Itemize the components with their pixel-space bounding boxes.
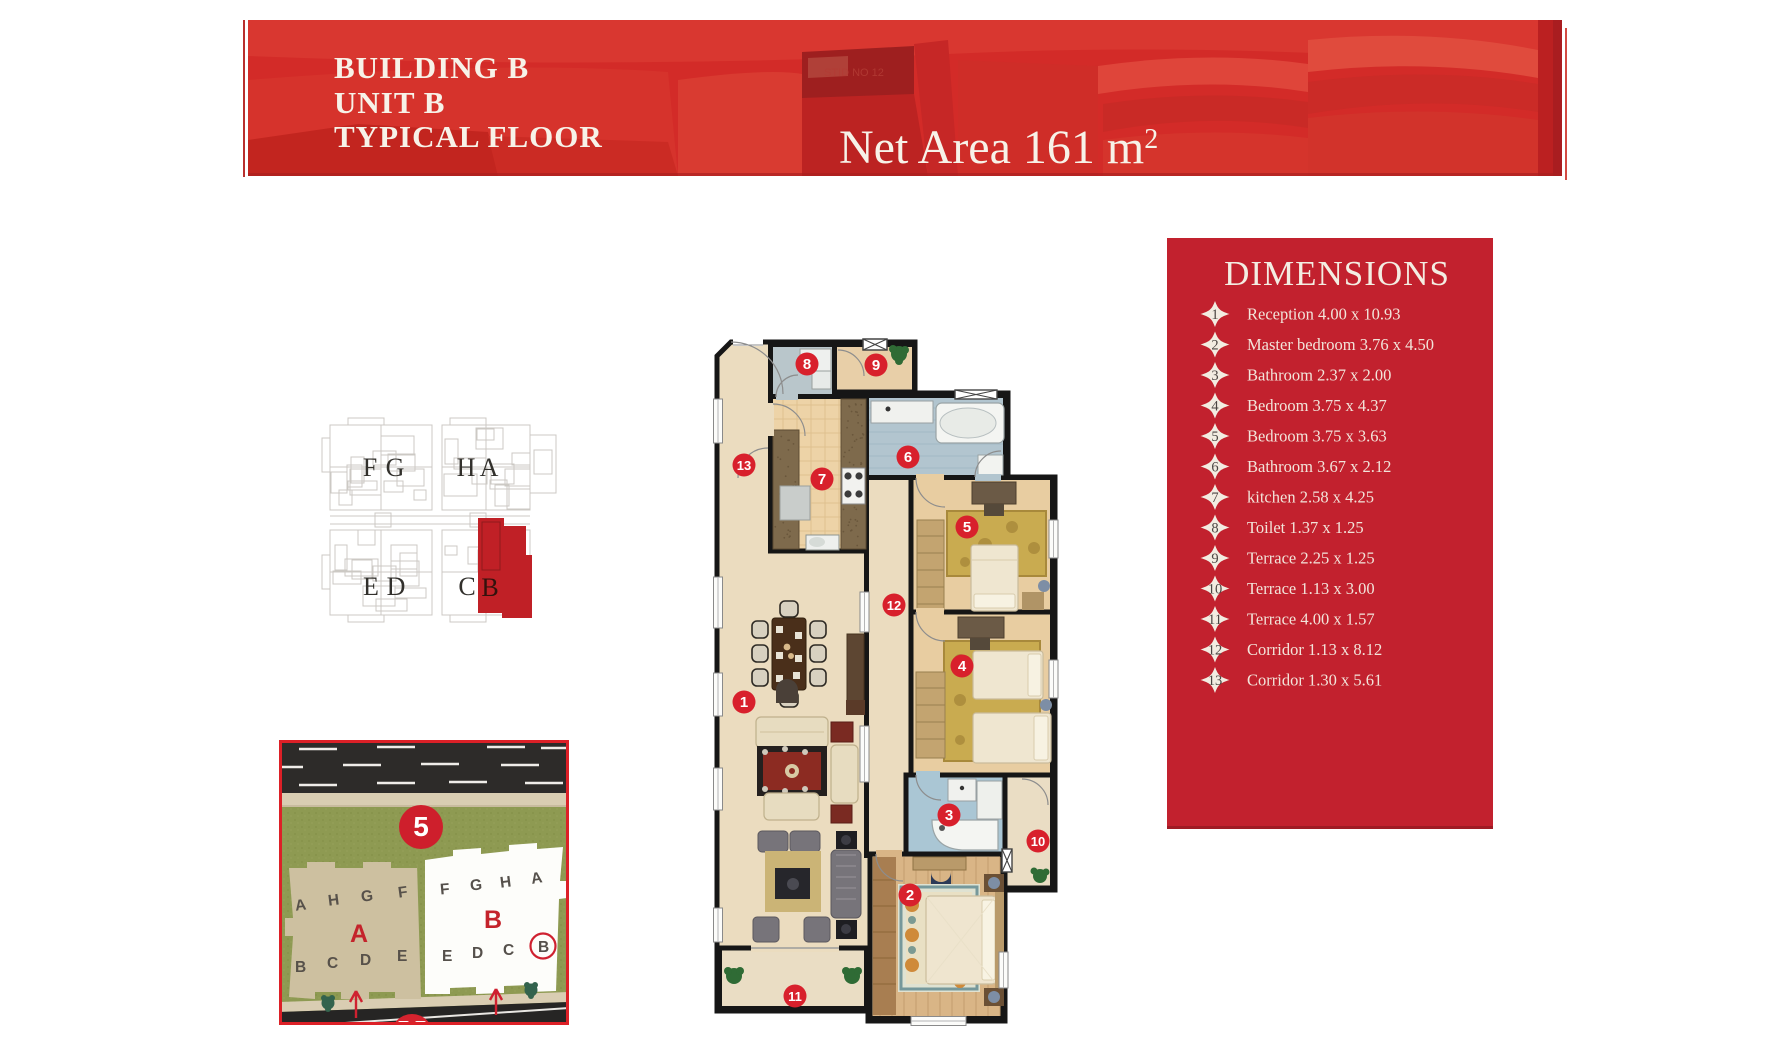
svg-text:Terrace 1.13 x 3.00: Terrace 1.13 x 3.00	[1247, 579, 1375, 598]
svg-text:Reception 4.00 x 10.93: Reception 4.00 x 10.93	[1247, 305, 1401, 324]
svg-text:D: D	[472, 945, 483, 962]
svg-text:4: 4	[1211, 399, 1219, 415]
svg-text:G: G	[360, 887, 374, 905]
svg-text:2: 2	[1211, 338, 1218, 354]
svg-text:5: 5	[413, 811, 429, 842]
svg-text:11: 11	[788, 989, 802, 1004]
svg-text:1: 1	[740, 694, 748, 711]
svg-text:9: 9	[872, 357, 880, 374]
svg-text:D: D	[360, 952, 371, 969]
svg-text:B: B	[481, 573, 498, 602]
svg-text:C: C	[503, 942, 514, 959]
svg-text:6: 6	[904, 449, 912, 466]
svg-text:Master bedroom 3.76 x 4.50: Master bedroom 3.76 x 4.50	[1247, 335, 1434, 354]
svg-text:H: H	[457, 453, 476, 482]
svg-text:Corridor 1.30 x 5.61: Corridor 1.30 x 5.61	[1247, 671, 1382, 690]
svg-text:4: 4	[958, 658, 967, 675]
svg-text:Terrace 2.25 x 1.25: Terrace 2.25 x 1.25	[1247, 549, 1375, 568]
svg-text:A: A	[350, 920, 368, 948]
svg-text:H: H	[327, 891, 340, 909]
svg-text:Toilet 1.37 x 1.25: Toilet 1.37 x 1.25	[1247, 518, 1364, 537]
svg-text:2: 2	[906, 887, 914, 904]
svg-text:5: 5	[963, 519, 971, 536]
svg-text:H: H	[499, 873, 512, 891]
svg-text:13: 13	[1208, 673, 1223, 689]
svg-text:12: 12	[887, 598, 901, 613]
svg-text:D: D	[387, 572, 406, 601]
svg-text:10: 10	[1208, 582, 1223, 598]
svg-text:F: F	[439, 881, 450, 899]
svg-text:C: C	[327, 955, 338, 972]
svg-text:7: 7	[818, 471, 826, 488]
svg-text:E: E	[363, 572, 379, 601]
svg-text:B: B	[295, 959, 306, 976]
svg-text:8: 8	[803, 356, 811, 373]
svg-text:E: E	[442, 948, 452, 965]
svg-text:6: 6	[1211, 460, 1218, 476]
svg-text:7: 7	[1211, 490, 1218, 506]
svg-text:11: 11	[1208, 612, 1222, 628]
svg-text:Terrace 4.00 x 1.57: Terrace 4.00 x 1.57	[1247, 610, 1375, 629]
svg-text:F: F	[363, 453, 377, 482]
svg-text:E: E	[397, 948, 407, 965]
svg-text:Bedroom 3.75 x 4.37: Bedroom 3.75 x 4.37	[1247, 396, 1387, 415]
svg-text:A: A	[294, 896, 307, 914]
svg-text:9: 9	[1211, 551, 1218, 567]
svg-text:B: B	[538, 939, 549, 956]
svg-text:3: 3	[1211, 368, 1218, 384]
svg-text:G: G	[386, 453, 405, 482]
svg-text:Corridor 1.13 x 8.12: Corridor 1.13 x 8.12	[1247, 640, 1382, 659]
svg-text:Bedroom 3.75 x 3.63: Bedroom 3.75 x 3.63	[1247, 427, 1387, 446]
svg-text:kitchen 2.58 x 4.25: kitchen 2.58 x 4.25	[1247, 488, 1374, 507]
svg-text:B: B	[484, 906, 502, 934]
svg-text:5: 5	[1211, 429, 1218, 445]
svg-text:Bathroom 3.67 x 2.12: Bathroom 3.67 x 2.12	[1247, 457, 1391, 476]
svg-text:3: 3	[945, 807, 953, 824]
svg-text:8: 8	[1211, 521, 1218, 537]
svg-text:STID NO 12: STID NO 12	[824, 67, 884, 79]
svg-text:A: A	[480, 453, 499, 482]
svg-text:1: 1	[1211, 307, 1218, 323]
svg-text:Bathroom 2.37 x 2.00: Bathroom 2.37 x 2.00	[1247, 366, 1391, 385]
svg-text:C: C	[458, 572, 475, 601]
svg-text:13: 13	[737, 458, 751, 473]
svg-text:G: G	[469, 877, 482, 895]
svg-text:10: 10	[1031, 834, 1045, 849]
svg-text:12: 12	[1208, 643, 1223, 659]
